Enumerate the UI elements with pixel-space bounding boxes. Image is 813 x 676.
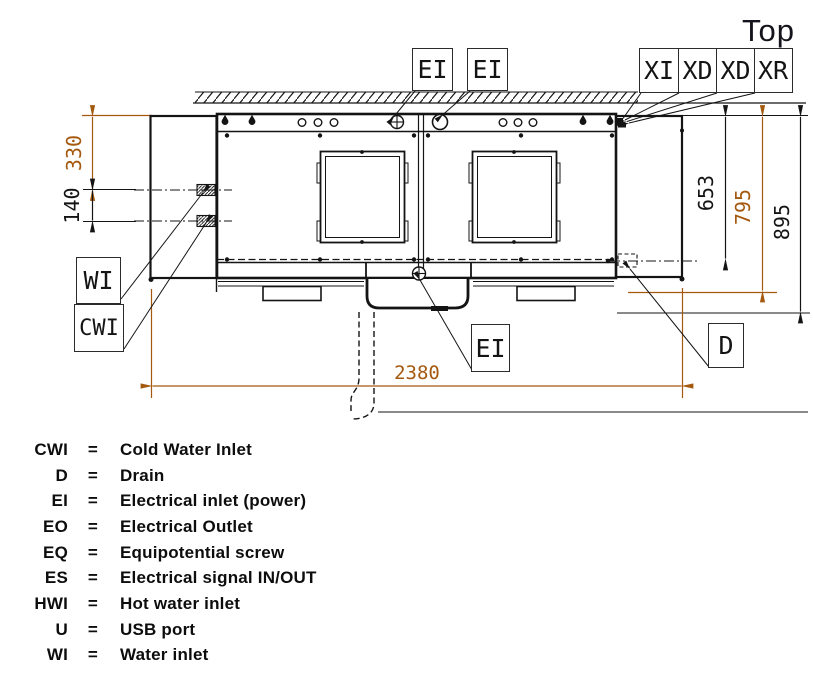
vent-hole [529, 119, 537, 127]
legend-desc: Water inlet [118, 645, 498, 665]
legend-equals: = [68, 440, 118, 460]
corner-fitting [617, 118, 623, 122]
legend-abbr: WI [18, 645, 68, 665]
left-panel [151, 116, 217, 278]
legend-abbr: EO [18, 517, 68, 537]
legend-equals: = [68, 491, 118, 511]
vent-hole [514, 119, 522, 127]
legend-desc: Electrical inlet (power) [118, 491, 498, 511]
square-cutout-left [317, 150, 408, 244]
callout-xd-1: XD [678, 48, 718, 93]
dimension-895: 895 [770, 117, 801, 312]
callout-xr: XR [754, 48, 793, 93]
cold-water-inlet-valve [197, 216, 215, 227]
dim-330-label: 330 [62, 135, 86, 171]
dimension-330: 330 [62, 117, 93, 189]
legend-row: WI = Water inlet [18, 643, 498, 669]
legend-desc: USB port [118, 620, 498, 640]
dim-795-label: 795 [731, 189, 755, 225]
vent-hole [499, 119, 507, 127]
right-panel [615, 116, 682, 277]
callout-ei-top-1: EI [412, 48, 453, 91]
dimension-795: 795 [731, 117, 763, 291]
callout-ei-top-2: EI [467, 48, 508, 91]
legend-row: HWI = Hot water inlet [18, 591, 498, 617]
corner-fitting [618, 124, 626, 128]
legend-desc: Cold Water Inlet [118, 440, 498, 460]
legend-abbr: ES [18, 568, 68, 588]
vent-hole [298, 119, 306, 127]
water-inlet-valve [197, 185, 215, 196]
callout-xi: XI [639, 48, 679, 93]
legend-row: ES = Electrical signal IN/OUT [18, 565, 498, 591]
technical-drawing-page: 330 140 653 795 895 [0, 0, 813, 676]
callout-cwi: CWI [74, 304, 124, 352]
callout-xd-2: XD [716, 48, 755, 93]
legend-row: EQ = Equipotential screw [18, 540, 498, 566]
electrical-inlet-hole [433, 115, 448, 130]
dim-140-label: 140 [60, 187, 84, 223]
electrical-inlet-symbol [391, 116, 404, 129]
legend-abbr: CWI [18, 440, 68, 460]
vent-hole [330, 119, 338, 127]
vent-hole [314, 119, 322, 127]
legend-equals: = [68, 466, 118, 486]
legend-abbr: HWI [18, 594, 68, 614]
legend-row: CWI = Cold Water Inlet [18, 437, 498, 463]
abbreviation-legend: CWI = Cold Water Inlet D = Drain EI = El… [18, 437, 498, 668]
legend-equals: = [68, 517, 118, 537]
appliance-outline [151, 114, 683, 278]
legend-desc: Electrical signal IN/OUT [118, 568, 498, 588]
legend-row: U = USB port [18, 617, 498, 643]
legend-abbr: U [18, 620, 68, 640]
legend-equals: = [68, 568, 118, 588]
dimension-140: 140 [60, 187, 93, 223]
drain-pan [367, 279, 468, 311]
leader-d [630, 269, 709, 367]
legend-abbr: EQ [18, 543, 68, 563]
legend-abbr: D [18, 466, 68, 486]
legend-equals: = [68, 543, 118, 563]
square-cutout-right [469, 150, 560, 244]
callout-d: D [708, 323, 744, 368]
legend-equals: = [68, 594, 118, 614]
legend-row: EI = Electrical inlet (power) [18, 488, 498, 514]
legend-desc: Equipotential screw [118, 543, 498, 563]
dim-653-label: 653 [694, 175, 718, 211]
legend-row: D = Drain [18, 463, 498, 489]
view-title: Top [742, 13, 795, 49]
callout-wi: WI [76, 257, 121, 304]
right-foot [517, 287, 575, 301]
legend-desc: Drain [118, 466, 498, 486]
drain-hose-dashed [351, 312, 374, 419]
legend-abbr: EI [18, 491, 68, 511]
legend-row: EO = Electrical Outlet [18, 514, 498, 540]
left-foot [263, 287, 321, 301]
legend-equals: = [68, 645, 118, 665]
callout-ei-bottom: EI [471, 324, 510, 372]
dim-895-label: 895 [770, 204, 794, 240]
legend-desc: Hot water inlet [118, 594, 498, 614]
dimension-653: 653 [694, 117, 726, 259]
legend-equals: = [68, 620, 118, 640]
legend-desc: Electrical Outlet [118, 517, 498, 537]
equipotential-screw-symbol [413, 267, 426, 280]
dim-2380-label: 2380 [394, 362, 440, 384]
